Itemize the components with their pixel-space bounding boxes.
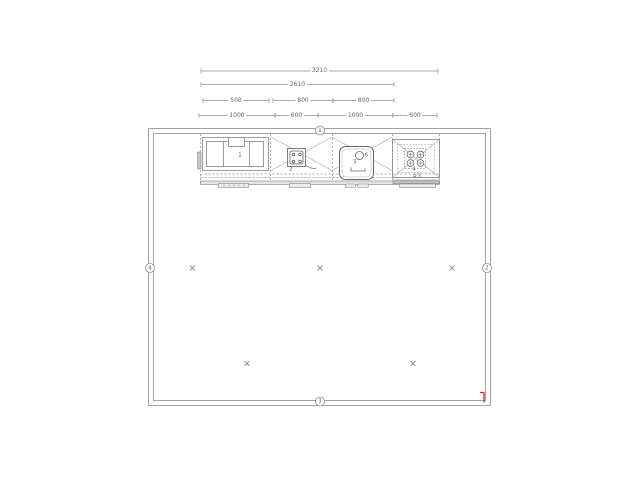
origin-marker [480,393,484,403]
oven-cable [306,165,317,169]
wall-marker-circle[interactable] [316,397,325,406]
wall-marker-circle[interactable] [146,264,155,273]
tall-cabinet[interactable] [198,138,269,171]
oven-symbol[interactable] [288,149,317,169]
wall-marker-circle[interactable] [483,264,492,273]
floor-cross-mark[interactable] [245,361,250,366]
hob-unit[interactable] [393,140,440,184]
floor-cross-mark[interactable] [190,266,195,271]
plan-drawing-area[interactable]: 3210261050080080010006001000600123412564… [0,0,640,480]
wall-marker-circle[interactable] [316,126,325,135]
sink-drain [356,152,364,160]
side-panel [198,152,202,169]
dimension-lines-layer [199,69,438,119]
floor-cross-mark[interactable] [318,266,323,271]
floor-cross-mark[interactable] [450,266,455,271]
floor-plan-canvas[interactable] [0,0,640,480]
sink-unit[interactable] [340,147,374,180]
hob-plinth [393,180,439,184]
floor-cross-mark[interactable] [411,361,416,366]
